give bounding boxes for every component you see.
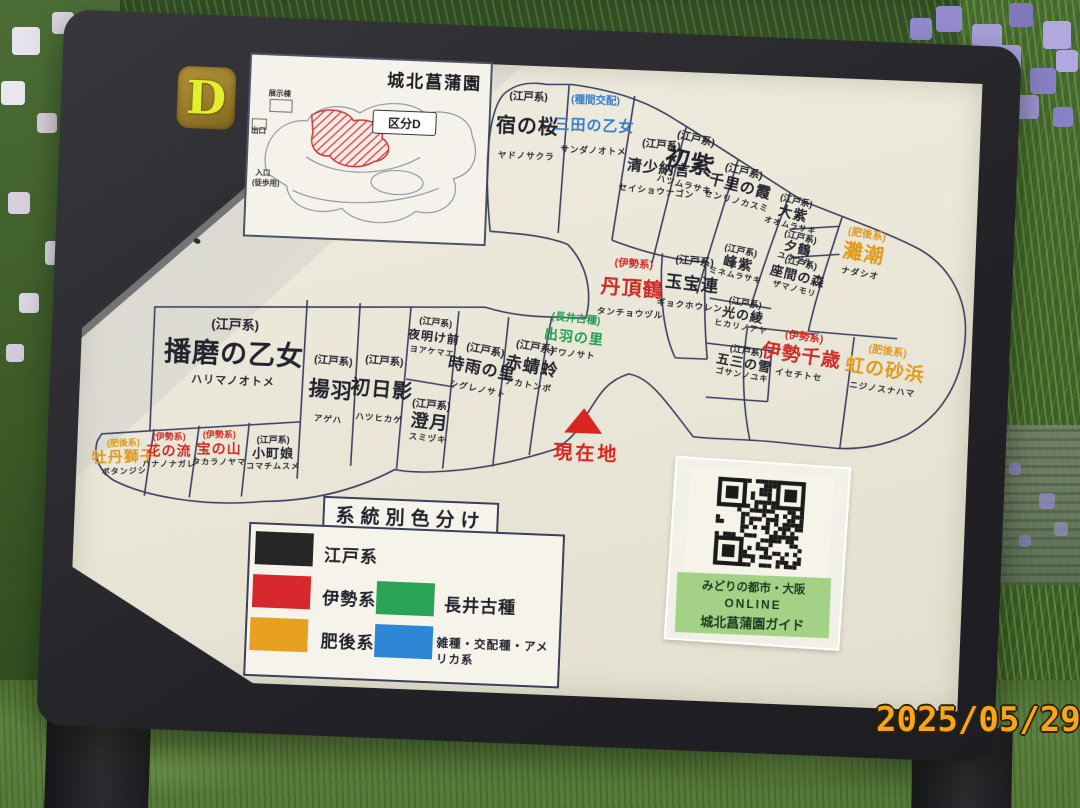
- qr-label-line3: 城北菖蒲園ガイド: [700, 611, 805, 634]
- legend-label-nagai: 長井古種: [444, 591, 517, 619]
- plot-category: (江戸系): [314, 354, 353, 369]
- plot-category: (江戸系): [365, 354, 404, 369]
- plot-category: (江戸系): [211, 317, 259, 333]
- plot-category: (江戸系): [257, 436, 290, 446]
- legend-swatch-edo: [255, 531, 314, 566]
- plot-cell: (江戸系)小町娘コマチムスメ: [246, 436, 300, 472]
- qr-label-line2: ONLINE: [724, 595, 782, 611]
- camera-date-stamp: 2025/05/29: [876, 700, 1080, 740]
- plot-name: 澄月: [409, 411, 449, 434]
- plot-kana: ボタンジシ: [102, 467, 147, 477]
- section-badge: D: [176, 66, 236, 130]
- plot-category: (伊勢系): [153, 433, 186, 443]
- plot-category: (江戸系): [509, 91, 548, 104]
- sign-board: D: [36, 9, 1022, 763]
- plot-name: 初日影: [349, 377, 414, 404]
- plot-cell: (伊勢系)花の流ハナノナガレ: [142, 432, 196, 469]
- plot-cell: (江戸系)夜明け前ヨアケマエ: [406, 315, 462, 360]
- qr-code-icon: [713, 477, 807, 571]
- plot-cell: (江戸系)初日影ハツヒカゲ: [347, 353, 416, 425]
- plot-cell: (江戸系)宿の桜ヤドノサクラ: [495, 90, 561, 161]
- plot-name: 丹頂鶴: [600, 277, 664, 303]
- legend-swatch-ise: [252, 574, 311, 609]
- legend-box: 江戸系 伊勢系 長井古種 肥後系 雑種・交配種・アメリカ系: [243, 522, 565, 689]
- plot-category: (伊勢系): [203, 431, 236, 441]
- legend-swatch-nagai: [376, 581, 435, 616]
- plot-name: 揚羽: [308, 378, 354, 404]
- iris-reflections: [0, 0, 2, 2]
- current-location-label: 現在地: [553, 437, 620, 467]
- plot-name: 三田の乙女: [554, 117, 635, 136]
- mini-map-title: 城北菖蒲園: [387, 66, 483, 95]
- plot-name: 播磨の乙女: [164, 337, 305, 371]
- photo-of-iris-garden-sign: D: [0, 0, 1080, 808]
- legend-label-edo: 江戸系: [324, 541, 379, 568]
- plot-category: (肥後系): [107, 438, 140, 448]
- plot-name: 花の流: [147, 444, 192, 459]
- plot-category: (伊勢系): [614, 258, 653, 272]
- map-label-exhibit-hall: 展示棟: [267, 87, 291, 98]
- legend-swatch-hybrid: [374, 624, 433, 659]
- plot-kana: ハナノナガレ: [142, 461, 196, 470]
- section-badge-letter: D: [185, 74, 227, 122]
- section-d-callout: 区分D: [372, 110, 437, 137]
- plot-cell: (肥後系)灘潮ナダシオ: [839, 226, 889, 282]
- legend-label-hybrid: 雑種・交配種・アメリカ系: [436, 635, 559, 672]
- qr-label-line1: みどりの都市・大阪: [702, 577, 806, 597]
- plot-category: (種間交配): [571, 94, 620, 107]
- legend-swatch-higo: [249, 617, 308, 652]
- plot-name: 伊勢千歳: [760, 341, 842, 372]
- garden-mini-map: 展示棟 出口 入口 (徒歩用) 城北菖蒲園 区分D: [243, 53, 493, 247]
- plot-category: (江戸系): [675, 255, 714, 270]
- map-label-entrance-note: (徒歩用): [252, 177, 280, 188]
- qr-sticker: みどりの都市・大阪 ONLINE 城北菖蒲園ガイド: [664, 456, 852, 651]
- plot-cell: (伊勢系)宝の山タカラノヤマ: [192, 430, 246, 467]
- legend-label-higo: 肥後系: [320, 627, 375, 654]
- plot-name: 灘潮: [841, 241, 886, 269]
- plot-kana: コマチムスメ: [246, 463, 300, 472]
- qr-label: みどりの都市・大阪 ONLINE 城北菖蒲園ガイド: [675, 572, 831, 638]
- plot-category: (江戸系): [419, 316, 453, 330]
- qr-card: [684, 467, 835, 580]
- plot-name: 宝の山: [197, 442, 242, 457]
- plot-name: 玉宝連: [664, 273, 720, 297]
- plot-cell: (江戸系)澄月スミヅキ: [408, 398, 451, 445]
- plot-name: 小町娘: [252, 447, 294, 461]
- plot-kana: タカラノヤマ: [192, 459, 246, 468]
- plot-cell: (伊勢系)丹頂鶴タンチョウヅル: [597, 257, 668, 321]
- map-label-exit: 出口: [251, 125, 266, 136]
- plot-name: 宿の桜: [495, 115, 559, 139]
- legend-label-ise: 伊勢系: [322, 584, 377, 611]
- map-label-entrance: 入口: [254, 168, 270, 178]
- plot-cell: (江戸系)播磨の乙女ハリマノオトメ: [163, 315, 306, 390]
